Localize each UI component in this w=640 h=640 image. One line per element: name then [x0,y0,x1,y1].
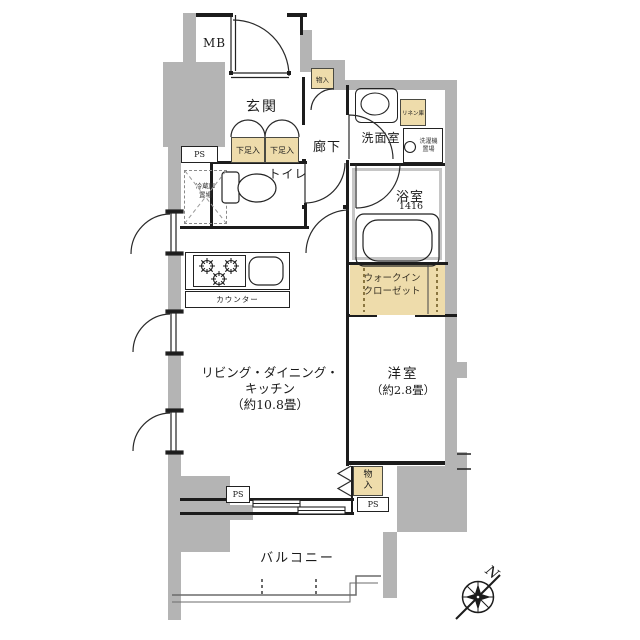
fridge-space-cross [185,171,226,223]
balcony-sliding-door [253,500,345,514]
west-window-arcs [131,214,170,451]
toilet-door-arc [305,163,345,203]
shoe-cabinet-door-arcs [231,120,299,137]
west-windows [166,210,183,454]
kitchen-sink [249,257,283,285]
folding-door [338,466,351,496]
plan-graphics: N [0,0,640,640]
washbasin-bowl [361,93,389,115]
bathtub [356,214,439,266]
east-window-ticks [457,454,471,469]
entrance-door-arc [233,20,289,76]
floor-plan: 下足入 下足入 物入 リネン庫 物 入 PS PS PS カウンター 冷蔵庫 置… [0,0,640,640]
washer-tap-icon [405,142,416,153]
balcony-railing [172,576,381,602]
stove-burner-icon [199,258,215,274]
compass-rose: N [456,562,502,619]
compass-north-label: N [481,562,502,583]
bathroom-door-arc [356,164,400,208]
toilet-fixture [222,172,276,203]
storage-top-door-arc [311,89,334,110]
wic-hanger-pipes [364,265,437,314]
washroom-door-arc [349,115,393,159]
ldk-door-arc [306,210,349,253]
stove-burner-icon [223,258,239,274]
stove-burner-icon [211,271,227,287]
